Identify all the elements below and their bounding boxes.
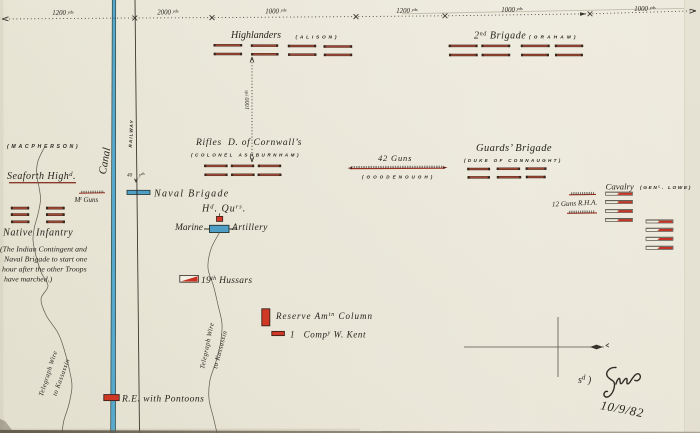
svg-text:hour after the other Troops: hour after the other Troops — [2, 265, 87, 274]
svg-text:Naval Brigade to start one: Naval Brigade to start one — [3, 255, 88, 264]
svg-text:Artillery: Artillery — [231, 223, 268, 233]
svg-text:R.E. with Pontoons: R.E. with Pontoons — [121, 395, 204, 405]
svg-text:Reserve Amtn Column: Reserve Amtn Column — [275, 311, 373, 321]
svg-text:(GRAHAM): (GRAHAM) — [529, 35, 579, 41]
svg-text:(GOODENOUGH): (GOODENOUGH) — [362, 175, 435, 180]
svg-text:(DUKE OF CONNAUGHT): (DUKE OF CONNAUGHT) — [464, 158, 563, 163]
svg-text:19th Hussars: 19th Hussars — [201, 276, 252, 286]
svg-text:Marine: Marine — [174, 223, 203, 233]
svg-text:sd ): sd ) — [578, 374, 592, 387]
svg-text:42 Guns: 42 Guns — [378, 153, 412, 163]
svg-text:Seaforth Highd.: Seaforth Highd. — [7, 171, 76, 182]
svg-text:(The Indian Contingent and: (The Indian Contingent and — [0, 245, 87, 254]
svg-text:Naval Brigade: Naval Brigade — [153, 189, 230, 200]
svg-text:(COLONEL ASHBURNHAM): (COLONEL ASHBURNHAM) — [191, 153, 301, 158]
svg-text:Guards’ Brigade: Guards’ Brigade — [476, 143, 552, 154]
svg-text:Rifles D. of Cornwall’s: Rifles D. of Cornwall’s — [195, 137, 302, 148]
svg-text:40: 40 — [127, 172, 133, 179]
svg-text:(GENL. LOWE): (GENL. LOWE) — [640, 185, 692, 191]
svg-text:Mt Guns: Mt Guns — [74, 196, 99, 204]
svg-text:Highlanders: Highlanders — [230, 30, 281, 41]
svg-text:Cavalry: Cavalry — [606, 182, 634, 192]
svg-text:(ALISON): (ALISON) — [296, 35, 340, 41]
svg-text:Native Infantry: Native Infantry — [2, 228, 73, 239]
